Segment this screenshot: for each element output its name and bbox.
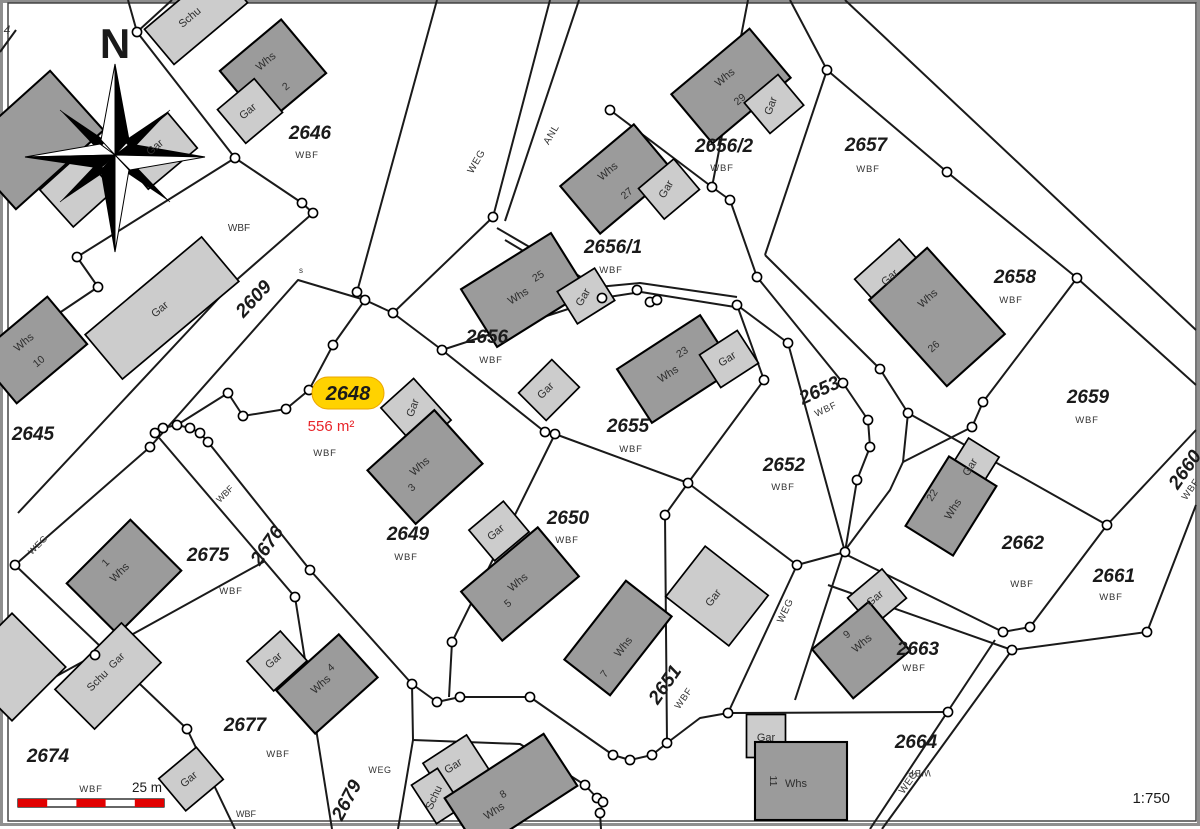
landuse-label: WBF [1075, 415, 1099, 426]
survey-point [597, 293, 606, 302]
landuse-label: WBF [219, 586, 243, 597]
survey-point [230, 153, 239, 162]
survey-point [290, 592, 299, 601]
landuse-label: WBF [295, 150, 319, 161]
survey-point [238, 411, 247, 420]
survey-point [608, 750, 617, 759]
survey-point [407, 679, 416, 688]
landuse-label: WBF [710, 163, 734, 174]
survey-point [281, 404, 290, 413]
map-viewport[interactable]: 2646WBF26452649WBF2650WBF2651WBF2652WBF2… [0, 0, 1200, 829]
survey-point [752, 272, 761, 281]
survey-point [90, 650, 99, 659]
highlighted-parcel-landuse: WBF [313, 448, 337, 459]
path-label-weg: WEG [368, 765, 391, 775]
highlighted-parcel-area: 556 m² [308, 418, 355, 435]
survey-point [145, 442, 154, 451]
parcel-label-2656-2: 2656/2 [694, 136, 754, 157]
landuse-label: WBF [266, 749, 290, 760]
misc-label: WBF [236, 809, 256, 819]
survey-point [297, 198, 306, 207]
survey-point [195, 428, 204, 437]
survey-point [998, 627, 1007, 636]
survey-point [305, 565, 314, 574]
survey-point [132, 27, 141, 36]
survey-point [903, 408, 912, 417]
survey-point [732, 300, 741, 309]
survey-point [388, 308, 397, 317]
building-number-whs-11: 11 [767, 776, 779, 787]
parcel-label-2664: 2664 [894, 732, 938, 753]
survey-point [203, 437, 212, 446]
survey-point [93, 282, 102, 291]
survey-point [72, 252, 81, 261]
survey-point [967, 422, 976, 431]
parcel-label-2677: 2677 [223, 715, 268, 736]
landuse-label: WBF [1099, 592, 1123, 603]
parcel-label-2662: 2662 [1001, 533, 1045, 554]
parcel-label-2663: 2663 [896, 639, 940, 660]
misc-label: 4 [4, 23, 11, 37]
survey-point [647, 750, 656, 759]
scale-bar-label: 25 m [132, 780, 162, 795]
scale-bar [18, 799, 164, 807]
landuse-label: WBF [555, 535, 579, 546]
highlighted-parcel-number: 2648 [325, 383, 371, 405]
landuse-label: WBF [479, 355, 503, 366]
parcel-label-2645: 2645 [11, 424, 55, 445]
parcel-label-2661: 2661 [1092, 566, 1135, 587]
parcel-label-2646: 2646 [288, 123, 332, 144]
survey-point [158, 423, 167, 432]
scale-ratio: 1:750 [1132, 790, 1170, 807]
landuse-label: WBF [394, 552, 418, 563]
cadastral-map[interactable]: 2646WBF26452649WBF2650WBF2651WBF2652WBF2… [0, 0, 1200, 829]
survey-point [943, 707, 952, 716]
survey-point [942, 167, 951, 176]
north-label: N [100, 20, 130, 67]
survey-point [707, 182, 716, 191]
survey-point [660, 510, 669, 519]
survey-point [360, 295, 369, 304]
building-label-whs-11: Whs [785, 778, 808, 790]
survey-point [632, 285, 641, 294]
survey-point [1102, 520, 1111, 529]
survey-point [172, 420, 181, 429]
parcel-label-2675: 2675 [186, 545, 230, 566]
survey-point [1025, 622, 1034, 631]
survey-point [625, 755, 634, 764]
boundary-line [728, 712, 948, 713]
parcel-label-2674: 2674 [26, 746, 70, 767]
survey-point [605, 105, 614, 114]
survey-point [595, 808, 604, 817]
survey-point [488, 212, 497, 221]
survey-point [328, 340, 337, 349]
parcel-label-2659: 2659 [1066, 387, 1110, 408]
landuse-label: WBF [999, 295, 1023, 306]
survey-point [525, 692, 534, 701]
survey-point [223, 388, 232, 397]
survey-point [447, 637, 456, 646]
survey-point [852, 475, 861, 484]
survey-point [182, 724, 191, 733]
survey-point [1007, 645, 1016, 654]
survey-point [792, 560, 801, 569]
survey-point [652, 295, 661, 304]
parcel-label-2656-1: 2656/1 [583, 237, 642, 258]
survey-point [865, 442, 874, 451]
survey-point [455, 692, 464, 701]
survey-point [10, 560, 19, 569]
survey-point [1072, 273, 1081, 282]
survey-point [683, 478, 692, 487]
survey-point [352, 287, 361, 296]
survey-point [550, 429, 559, 438]
survey-point [723, 708, 732, 717]
misc-label: s [299, 266, 303, 275]
landuse-label: WBF [856, 164, 880, 175]
survey-point [1142, 627, 1151, 636]
parcel-label-2650: 2650 [546, 508, 590, 529]
survey-point [725, 195, 734, 204]
parcel-label-2658: 2658 [993, 267, 1037, 288]
map-neatline [8, 3, 1196, 821]
survey-point [432, 697, 441, 706]
landuse-label: WBF [902, 663, 926, 674]
landuse-label: WBF [1010, 579, 1034, 590]
survey-point [308, 208, 317, 217]
survey-point [978, 397, 987, 406]
survey-point [580, 780, 589, 789]
landuse-label: WBF [619, 444, 643, 455]
survey-point [437, 345, 446, 354]
survey-point [662, 738, 671, 747]
survey-point [863, 415, 872, 424]
landuse-label: WBF [79, 784, 103, 795]
building-label-gar-11: Gar [757, 732, 776, 744]
landuse-label: WBF [771, 482, 795, 493]
parcel-label-2655: 2655 [606, 416, 650, 437]
survey-point [840, 547, 849, 556]
survey-point [875, 364, 884, 373]
landuse-label: WBF [599, 265, 623, 276]
parcel-label-2652: 2652 [762, 455, 806, 476]
survey-point [822, 65, 831, 74]
parcel-label-2649: 2649 [386, 524, 430, 545]
survey-point [759, 375, 768, 384]
parcel-label-2657: 2657 [844, 135, 889, 156]
parcel-label-2656: 2656 [465, 327, 509, 348]
survey-point [598, 797, 607, 806]
survey-point [783, 338, 792, 347]
misc-label: WBF [228, 223, 250, 234]
survey-point [540, 427, 549, 436]
survey-point [185, 423, 194, 432]
